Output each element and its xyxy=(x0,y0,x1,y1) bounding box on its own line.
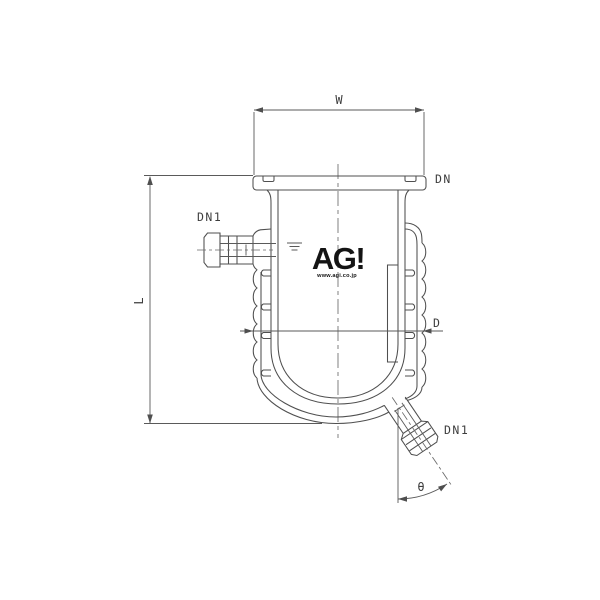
valve-center-tick xyxy=(394,405,404,412)
technical-drawing-jacketed-reaction-vessel: W L DN xyxy=(0,0,600,600)
bottom-valve-label: DN1 xyxy=(444,423,469,437)
jacket-wall-right xyxy=(422,243,426,387)
dim-d-label: D xyxy=(433,316,441,330)
dimension-w: W xyxy=(254,93,424,175)
arrowhead-right-icon xyxy=(245,328,254,333)
arrowhead-right-icon xyxy=(415,107,424,113)
arrowhead-down-icon xyxy=(147,415,153,424)
side-nozzle-dn1: DN1 xyxy=(197,210,276,270)
jacket-ties-left xyxy=(261,270,271,376)
baffle-pocket xyxy=(388,265,399,362)
logo: AG! www.agi.co.jp xyxy=(312,241,364,279)
arrowhead-upright-icon xyxy=(438,484,447,491)
side-nozzle-label: DN1 xyxy=(197,210,222,224)
angle-theta: θ xyxy=(398,408,447,503)
dimension-d: D xyxy=(240,316,443,334)
angle-theta-label: θ xyxy=(417,480,424,494)
dim-w-label: W xyxy=(335,93,343,107)
flange-groove-left xyxy=(263,177,274,182)
flange-dn-label: DN xyxy=(435,172,452,186)
dim-l-label: L xyxy=(132,297,146,304)
flange-groove-right xyxy=(405,177,416,182)
dimension-l: L xyxy=(132,176,322,424)
arrowhead-up-icon xyxy=(147,176,153,185)
jacket-ties-right xyxy=(405,270,415,376)
arrowhead-left-icon xyxy=(398,496,407,502)
jacket-wall-left xyxy=(253,270,257,378)
logo-url-text: www.agi.co.jp xyxy=(316,273,357,279)
top-flange: DN xyxy=(253,172,452,190)
logo-text: AG! xyxy=(312,241,364,276)
liquid-level-icon xyxy=(287,243,302,250)
arrowhead-left-icon xyxy=(254,107,263,113)
